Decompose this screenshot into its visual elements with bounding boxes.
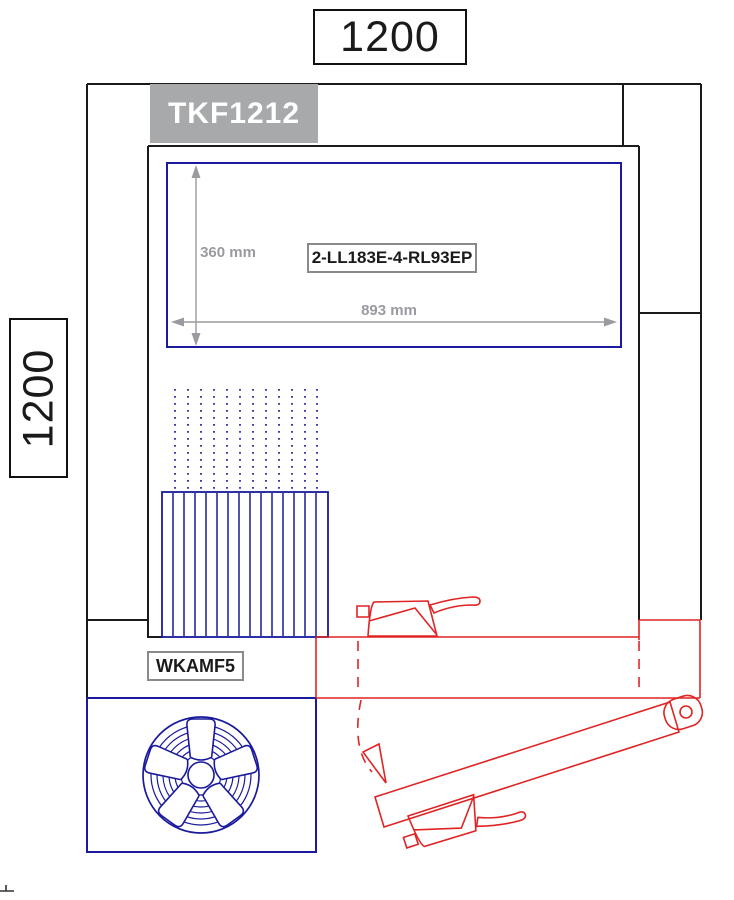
arrow-left-icon	[171, 318, 184, 327]
evaporator-model-label: 2-LL183E-4-RL93EP	[307, 243, 477, 273]
door-handle-open	[398, 781, 527, 856]
fan-icon	[143, 717, 259, 833]
coil-hatch-block	[162, 492, 328, 637]
unit-model-value: TKF1212	[168, 97, 300, 131]
evaporator-model-value: 2-LL183E-4-RL93EP	[312, 248, 473, 268]
door-open	[358, 692, 706, 857]
evaporator-width-text: 893 mm	[339, 302, 439, 319]
arrow-up-icon	[192, 165, 201, 178]
corner-mark	[0, 885, 14, 891]
fan-unit	[87, 698, 316, 852]
arrow-down-icon	[192, 333, 201, 346]
plan-drawing	[0, 0, 734, 900]
door-swing-arrow	[358, 700, 386, 783]
floor-plan-canvas: 1200 1200 TKF1212 2-LL183E-4-RL93EP WKAM…	[0, 0, 734, 900]
room-walls	[87, 84, 701, 698]
door-closed	[316, 597, 700, 698]
arrowhead-icon	[363, 744, 386, 783]
evaporator-depth-text: 360 mm	[178, 244, 278, 261]
top-dimension-label: 1200	[313, 9, 467, 65]
door-handle-closed	[357, 597, 480, 636]
door-model-label: WKAMF5	[147, 651, 244, 681]
door-model-value: WKAMF5	[156, 656, 235, 677]
unit-model-box: TKF1212	[150, 84, 318, 143]
left-dimension-label: 1200	[9, 318, 68, 478]
wall-bottom-left-step	[87, 620, 162, 637]
overall-depth-value: 1200	[14, 348, 63, 448]
arrow-right-icon	[604, 318, 617, 327]
airflow-dots	[175, 389, 317, 490]
door-leaf-open	[375, 702, 679, 827]
overall-width-value: 1200	[340, 13, 440, 62]
